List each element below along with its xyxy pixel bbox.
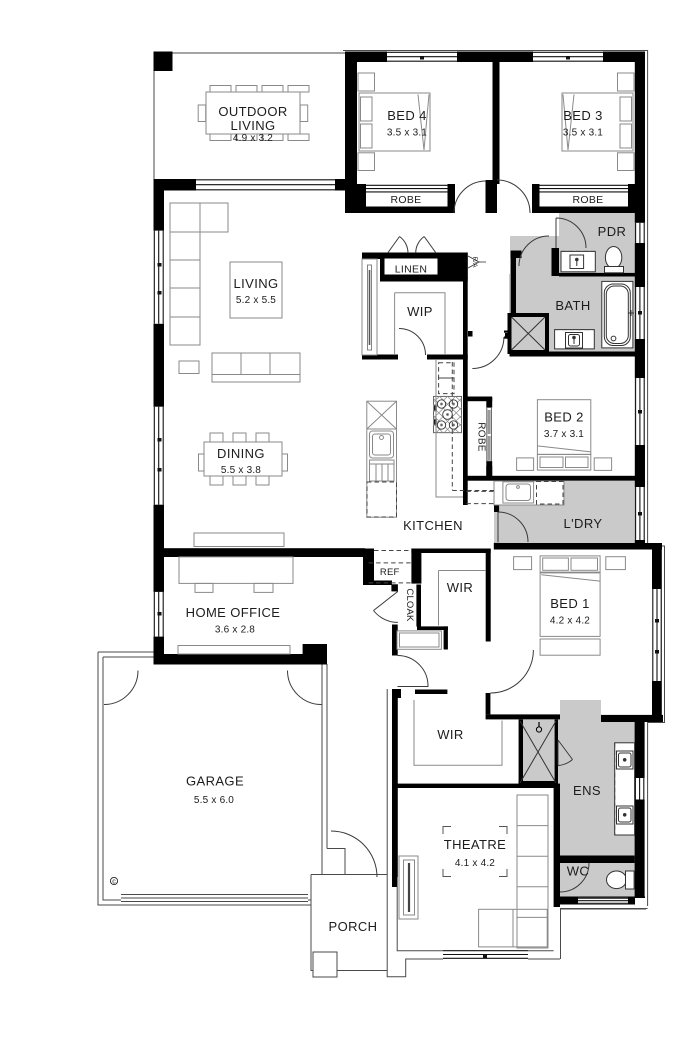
svg-text:3.5 x 3.1: 3.5 x 3.1 <box>387 128 427 139</box>
svg-text:ROBE: ROBE <box>476 422 487 452</box>
svg-text:LINEN: LINEN <box>395 264 427 276</box>
svg-text:ROBE: ROBE <box>391 194 422 206</box>
svg-text:THEATRE: THEATRE <box>444 837 507 852</box>
svg-text:WIR: WIR <box>437 727 463 742</box>
svg-text:DINING: DINING <box>217 446 265 461</box>
svg-text:REF: REF <box>380 567 400 578</box>
svg-text:LIVING: LIVING <box>233 276 278 291</box>
svg-text:ROBE: ROBE <box>573 194 604 206</box>
svg-text:c: c <box>112 879 116 886</box>
svg-text:4.9 x 3.2: 4.9 x 3.2 <box>233 133 273 144</box>
svg-text:ENS: ENS <box>573 783 601 798</box>
svg-text:R/A: R/A <box>471 257 478 269</box>
svg-text:BED 1: BED 1 <box>550 596 590 611</box>
svg-text:5.5 x 3.8: 5.5 x 3.8 <box>221 465 261 476</box>
svg-text:LIVING: LIVING <box>230 118 275 133</box>
svg-text:WC: WC <box>567 864 589 879</box>
svg-text:5.5 x 6.0: 5.5 x 6.0 <box>194 795 234 806</box>
svg-text:GARAGE: GARAGE <box>186 774 244 789</box>
svg-text:BATH: BATH <box>555 298 590 313</box>
svg-text:L'DRY: L'DRY <box>564 516 603 531</box>
svg-text:KITCHEN: KITCHEN <box>403 518 463 533</box>
svg-text:BED 3: BED 3 <box>563 108 603 123</box>
svg-text:CLOAK: CLOAK <box>404 588 415 622</box>
svg-text:5.2 x 5.5: 5.2 x 5.5 <box>236 295 276 306</box>
svg-text:4.1 x 4.2: 4.1 x 4.2 <box>455 858 495 869</box>
svg-text:PORCH: PORCH <box>329 919 378 934</box>
svg-text:WIP: WIP <box>407 304 433 319</box>
svg-text:4.2 x 4.2: 4.2 x 4.2 <box>550 616 590 627</box>
svg-text:PDR: PDR <box>598 224 627 239</box>
svg-text:WIR: WIR <box>447 580 473 595</box>
svg-text:OUTDOOR: OUTDOOR <box>218 104 287 119</box>
svg-text:3.6 x 2.8: 3.6 x 2.8 <box>215 625 255 636</box>
svg-text:3.7 x 3.1: 3.7 x 3.1 <box>544 429 584 440</box>
svg-text:HOME OFFICE: HOME OFFICE <box>186 605 281 620</box>
svg-text:BED 2: BED 2 <box>544 410 584 425</box>
svg-text:3.5 x 3.1: 3.5 x 3.1 <box>563 128 603 139</box>
svg-text:BED 4: BED 4 <box>387 108 427 123</box>
